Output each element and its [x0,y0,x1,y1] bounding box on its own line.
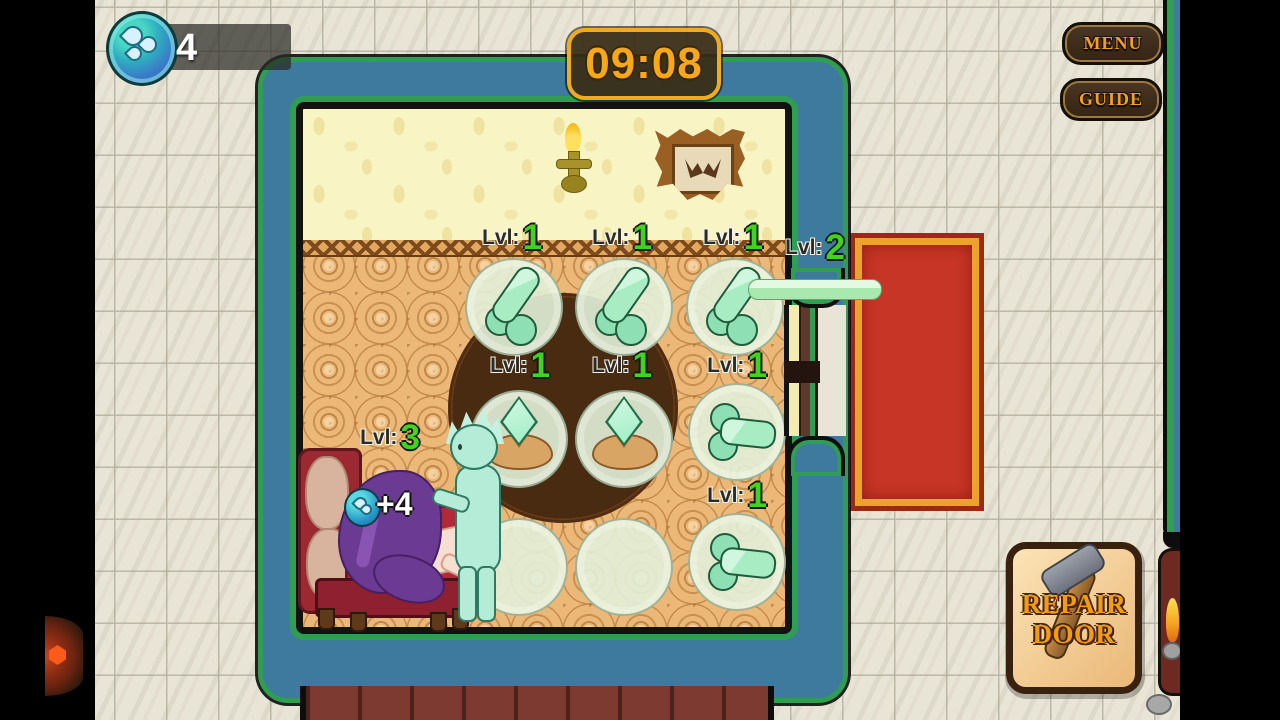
slime-eye [458,444,462,450]
shield-emblem [685,159,721,179]
candle-flame-icon [565,123,581,153]
game-screen: +4 Lvl:1 Lvl:1 Lvl:1 Lvl:2 Lvl:1 Lvl:1 L… [0,0,1280,720]
unit-slot-turret[interactable] [465,258,563,356]
side-turret-unit [719,416,778,450]
candle-arms [556,159,592,169]
level-badge: Lvl:1 [592,350,652,382]
lower-room-plank-floor [300,686,774,720]
repair-door-button[interactable]: REPAIR DOOR [1006,542,1142,694]
unit-slot-empty[interactable] [575,518,673,616]
water-drops-icon [106,11,178,86]
level-badge: Lvl:3 [360,422,420,454]
flame-icon [1166,598,1179,642]
rock-icon [1146,694,1172,715]
unit-slot-side-turret[interactable] [688,513,786,611]
slime-leg [477,566,496,622]
gain-popup: +4 [376,486,412,523]
slime-body [455,464,501,574]
door-turret-beam[interactable] [748,279,882,300]
right-neighbor-wall-cap [1163,532,1180,548]
repair-label-line2: DOOR [1013,619,1135,650]
unit-slot-turret[interactable] [575,258,673,356]
left-letterbox [0,0,95,720]
repair-label-line1: REPAIR [1013,589,1135,620]
right-letterbox [1180,0,1280,720]
timer-value: 09:08 [585,39,703,89]
menu-button[interactable]: MENU [1062,22,1164,65]
side-round-button[interactable] [45,616,83,696]
right-neighbor-wall [1163,0,1180,540]
door-crossbar [784,361,820,383]
level-badge: Lvl:1 [707,480,767,512]
level-badge: Lvl:2 [785,232,845,264]
level-badge: Lvl:1 [703,222,763,254]
unit-slot-turret[interactable] [686,258,784,356]
rock-icon [1162,642,1182,660]
unit-slot-crystal[interactable] [575,390,673,488]
broken-door-gap[interactable] [784,305,846,436]
couch-leg [350,612,367,632]
timer: 09:08 [567,28,721,100]
side-turret-unit [719,546,778,580]
couch-leg [430,612,447,632]
candle-base [561,175,587,193]
wall-cap-bottom [787,436,845,476]
guide-button[interactable]: GUIDE [1060,78,1162,121]
side-button-core [49,645,66,665]
level-badge: Lvl:1 [707,350,767,382]
level-badge: Lvl:1 [482,222,542,254]
guide-button-label: GUIDE [1079,89,1143,110]
level-badge: Lvl:1 [592,222,652,254]
level-badge: Lvl:1 [490,350,550,382]
menu-button-label: MENU [1084,33,1143,54]
unit-slot-side-turret[interactable] [688,383,786,481]
slime-leg [458,566,477,622]
water-count: 4 [176,27,197,70]
couch-leg [318,608,335,630]
